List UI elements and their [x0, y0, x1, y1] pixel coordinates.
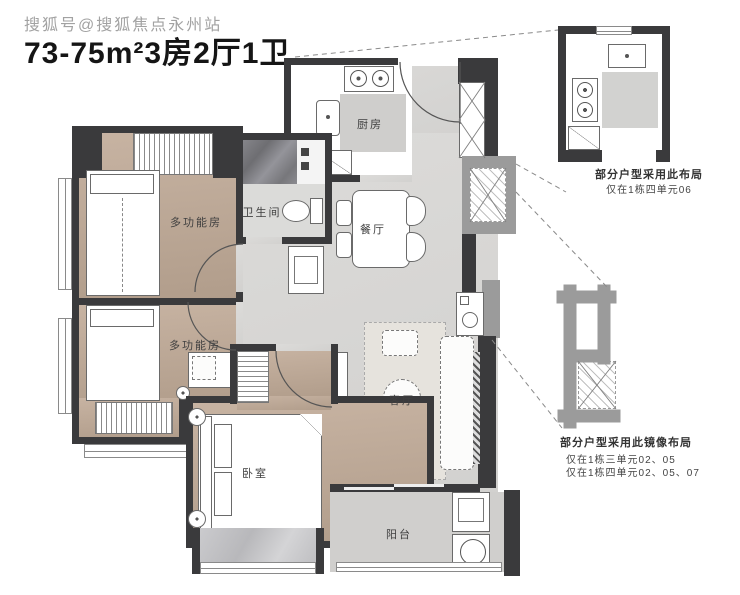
- inset-kitchen-caption-1: 部分户型采用此布局: [556, 166, 740, 182]
- radiator-shelf: [133, 133, 213, 175]
- inset-mirror-caption-1: 部分户型采用此镜像布局: [560, 434, 740, 450]
- bay-pier: [316, 528, 324, 574]
- room-label-balcony: 阳台: [349, 526, 449, 542]
- vanity-sink: [294, 256, 318, 284]
- pillow: [90, 174, 154, 194]
- page-title: 73-75m²3房2厅1卫: [24, 28, 290, 72]
- inset-kitchen-opening: [602, 150, 656, 162]
- inset-mirror-hatch-square: [578, 361, 616, 409]
- leader-line: [295, 30, 558, 57]
- niche-box-icon: [301, 162, 309, 170]
- leader-line: [492, 340, 562, 428]
- laundry-basin: [458, 498, 484, 522]
- wall-east: [478, 336, 496, 488]
- inset-corner-cabinet: [568, 126, 600, 150]
- bathroom-door-opening: [246, 237, 282, 244]
- room-label-living: 客厅: [352, 392, 452, 408]
- bay-window: [58, 318, 72, 414]
- ac-platform-hatch: [470, 168, 506, 222]
- sink-drain-icon: [625, 54, 629, 58]
- stove-burner-icon: [372, 70, 389, 87]
- radiator-shelf: [95, 402, 173, 434]
- sliding-door-panel: [344, 487, 394, 490]
- wall-east: [484, 58, 498, 160]
- stove-burner-icon: [350, 70, 367, 87]
- bay-window: [58, 178, 72, 290]
- leader-line: [516, 192, 607, 287]
- pillow: [214, 424, 232, 468]
- bay-pier: [192, 528, 200, 574]
- blanket-fold: [300, 414, 322, 436]
- wardrobe: [237, 351, 269, 403]
- side-table: [382, 330, 418, 356]
- bed-centerline: [122, 198, 123, 292]
- bay-window: [200, 562, 316, 574]
- balcony-window: [336, 562, 502, 572]
- inset-kitchen-caption-2: 仅在1栋四单元06: [556, 181, 740, 196]
- stove-burner-icon: [577, 82, 593, 98]
- desk-chair: [192, 356, 216, 380]
- stove-burner-icon: [577, 102, 593, 118]
- fan-symbol-icon: [188, 510, 206, 528]
- bedroom-bay-sill: [200, 528, 316, 562]
- entry-door-opening: [398, 54, 458, 66]
- room1-door-opening: [236, 244, 243, 292]
- water-heater-icon: [462, 312, 478, 328]
- niche-box-icon: [301, 148, 309, 156]
- floorplan-page: { "watermark": "搜狐号@搜狐焦点永州站", "title": "…: [0, 0, 740, 595]
- room-label-dining: 餐厅: [323, 221, 423, 237]
- balcony-pier: [504, 490, 520, 576]
- kitchen-opening: [360, 175, 412, 182]
- entry-closet: [459, 82, 485, 158]
- room-label-kitchen: 厨房: [320, 116, 420, 132]
- sofa-back-hatch: [473, 352, 480, 464]
- wall-pier: [213, 126, 243, 178]
- inset-kitchen-window: [596, 26, 632, 35]
- cabinet-box-icon: [460, 296, 469, 305]
- exterior-bump: [482, 280, 500, 338]
- room-label-multi-function-2: 多功能房: [145, 337, 245, 353]
- bedroom-door-opening: [276, 344, 331, 351]
- room-label-bathroom: 卫生间: [212, 204, 312, 220]
- inset-kitchen-island: [602, 72, 658, 128]
- sliding-door-panel: [394, 484, 444, 487]
- shower-area: [243, 140, 297, 184]
- fan-symbol-icon: [188, 408, 206, 426]
- pillow: [90, 309, 154, 327]
- inset-mirror-caption-3: 仅在1栋四单元02、05、07: [566, 464, 740, 479]
- room-label-bedroom: 卧室: [205, 465, 305, 481]
